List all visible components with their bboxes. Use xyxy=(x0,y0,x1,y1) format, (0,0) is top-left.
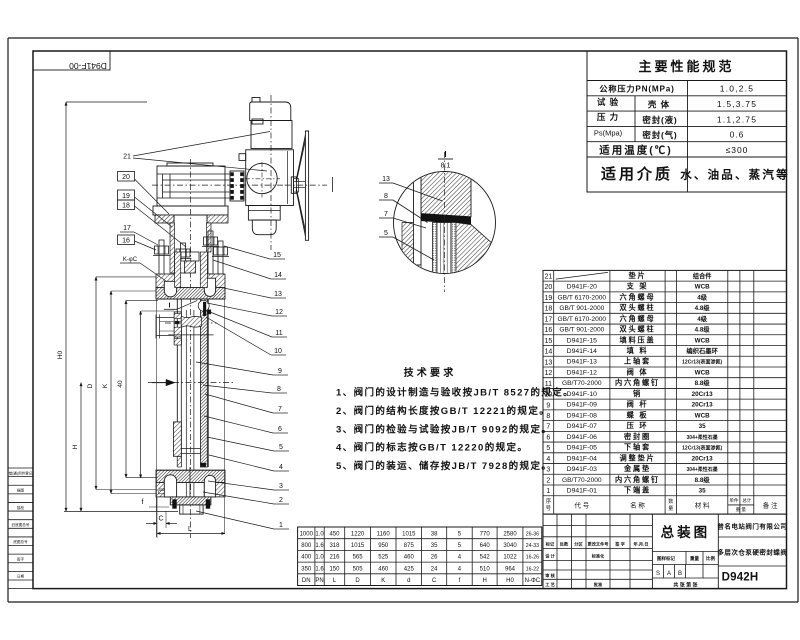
svg-text:签字: 签字 xyxy=(17,556,25,561)
svg-text:压 环: 压 环 xyxy=(627,421,649,430)
svg-text:编织石墨环: 编织石墨环 xyxy=(686,346,718,355)
svg-text:设 计: 设 计 xyxy=(545,553,555,560)
svg-text:D942H: D942H xyxy=(722,572,759,584)
svg-text:D941F-07: D941F-07 xyxy=(567,423,597,430)
svg-text:双头螺柱: 双头螺柱 xyxy=(620,325,656,334)
svg-text:640: 640 xyxy=(480,543,491,549)
svg-text:1220: 1220 xyxy=(351,531,365,537)
svg-text:1.5,3.75: 1.5,3.75 xyxy=(717,99,757,109)
svg-text:填料压盖: 填料压盖 xyxy=(620,335,656,344)
svg-text:审 核: 审 核 xyxy=(545,572,555,579)
svg-text:N-ΦC: N-ΦC xyxy=(525,578,541,584)
svg-text:阀 杆: 阀 杆 xyxy=(627,400,649,409)
svg-text:3040: 3040 xyxy=(503,543,517,549)
svg-text:510: 510 xyxy=(480,566,491,572)
svg-text:D: D xyxy=(355,578,360,584)
svg-text:K-φC: K-φC xyxy=(123,257,138,263)
svg-text:单件: 单件 xyxy=(729,497,738,504)
svg-text:24-33: 24-33 xyxy=(526,543,539,549)
svg-text:1160: 1160 xyxy=(377,531,391,537)
svg-text:150: 150 xyxy=(329,566,340,572)
svg-text:875: 875 xyxy=(404,543,415,549)
svg-text:1000: 1000 xyxy=(300,531,314,537)
svg-text:19: 19 xyxy=(544,295,552,302)
svg-text:密封圈: 密封圈 xyxy=(623,432,651,441)
svg-text:D941F-20: D941F-20 xyxy=(567,284,597,291)
svg-text:12Cr13(表面渗氮): 12Cr13(表面渗氮) xyxy=(682,359,722,366)
svg-text:400: 400 xyxy=(301,555,312,561)
svg-text:216: 216 xyxy=(329,555,340,561)
svg-text:1022: 1022 xyxy=(503,555,517,561)
svg-text:壳 体: 壳 体 xyxy=(647,100,670,110)
svg-text:总装图: 总装图 xyxy=(661,524,711,540)
svg-text:公称压力PN(MPa): 公称压力PN(MPa) xyxy=(599,84,674,94)
svg-text:多层次仓泵硬密封蝶阀: 多层次仓泵硬密封蝶阀 xyxy=(717,548,787,557)
svg-text:总计: 总计 xyxy=(742,497,751,504)
svg-text:D941F-15: D941F-15 xyxy=(567,337,597,344)
svg-text:2: 2 xyxy=(279,497,283,504)
svg-text:5: 5 xyxy=(384,230,388,237)
svg-text:16: 16 xyxy=(122,238,130,245)
svg-text:下轴套: 下轴套 xyxy=(624,443,651,452)
svg-text:标准化: 标准化 xyxy=(591,553,605,560)
svg-text:8:1: 8:1 xyxy=(441,163,451,170)
svg-text:量: 量 xyxy=(668,505,673,512)
svg-text:D941F-14: D941F-14 xyxy=(567,348,597,355)
svg-text:542: 542 xyxy=(480,555,491,561)
svg-text:16: 16 xyxy=(544,327,552,334)
svg-text:20: 20 xyxy=(122,174,130,181)
svg-text:7: 7 xyxy=(278,406,282,413)
svg-text:适用温度(℃): 适用温度(℃) xyxy=(599,144,673,157)
svg-text:密封(气): 密封(气) xyxy=(641,130,677,140)
svg-text:蝶 板: 蝶 板 xyxy=(627,410,649,419)
svg-text:8.8级: 8.8级 xyxy=(695,378,711,387)
svg-text:图样标记: 图样标记 xyxy=(657,555,675,562)
svg-text:11: 11 xyxy=(275,330,282,337)
svg-text:年.月.日: 年.月.日 xyxy=(634,541,649,548)
svg-text:3、阀门的检验与试验按JB/T 9092的规定。: 3、阀门的检验与试验按JB/T 9092的规定。 xyxy=(336,423,552,435)
svg-text:GB/T 901-2000: GB/T 901-2000 xyxy=(559,327,604,334)
svg-text:24: 24 xyxy=(431,566,438,572)
svg-text:D941F-05: D941F-05 xyxy=(567,445,597,452)
svg-text:重 量: 重 量 xyxy=(736,506,747,513)
svg-text:D941F-08: D941F-08 xyxy=(567,412,597,419)
svg-text:8: 8 xyxy=(277,386,281,393)
svg-text:1、阀门的设计制造与验收按JB/T 8527的规定。: 1、阀门的设计制造与验收按JB/T 8527的规定。 xyxy=(336,387,574,399)
svg-text:26: 26 xyxy=(431,555,438,561)
svg-text:4、阀门的标志按GB/T 12220的规定。: 4、阀门的标志按GB/T 12220的规定。 xyxy=(336,442,528,454)
svg-text:S: S xyxy=(656,571,660,577)
svg-text:16-22: 16-22 xyxy=(526,566,539,572)
svg-text:5、阀门的装运、储存按JB/T 7928的规定。: 5、阀门的装运、储存按JB/T 7928的规定。 xyxy=(336,460,552,472)
svg-text:10: 10 xyxy=(274,348,282,355)
svg-text:350: 350 xyxy=(301,566,312,572)
svg-text:DN: DN xyxy=(302,578,311,584)
svg-text:2、阀门的结构长度按GB/T 12221的规定。: 2、阀门的结构长度按GB/T 12221的规定。 xyxy=(336,405,550,417)
svg-text:19: 19 xyxy=(122,193,130,200)
svg-text:Ps(Mpa): Ps(Mpa) xyxy=(594,129,623,138)
svg-text:六角螺母: 六角螺母 xyxy=(620,314,656,323)
svg-text:垫片: 垫片 xyxy=(629,271,647,280)
svg-text:318: 318 xyxy=(329,543,340,549)
svg-text:7: 7 xyxy=(384,211,388,218)
svg-text:8: 8 xyxy=(384,193,388,200)
svg-text:14: 14 xyxy=(544,349,552,356)
svg-text:旧底图总号: 旧底图总号 xyxy=(12,522,30,527)
svg-text:35: 35 xyxy=(431,543,438,549)
svg-text:处数: 处数 xyxy=(559,541,569,548)
svg-text:460: 460 xyxy=(378,566,389,572)
svg-text:组合件: 组合件 xyxy=(693,271,713,280)
svg-text:内六角螺钉: 内六角螺钉 xyxy=(615,378,660,387)
svg-text:K: K xyxy=(102,383,109,388)
svg-text:4级: 4级 xyxy=(697,314,708,323)
svg-text:GB/T 6170-2000: GB/T 6170-2000 xyxy=(557,316,606,323)
svg-text:40: 40 xyxy=(117,380,124,388)
svg-text:1.6: 1.6 xyxy=(315,566,324,572)
svg-text:4.8级: 4.8级 xyxy=(695,303,711,312)
svg-text:525: 525 xyxy=(378,555,389,561)
svg-text:阀 体: 阀 体 xyxy=(627,367,649,376)
svg-text:水、油品、蒸汽等: 水、油品、蒸汽等 xyxy=(680,168,790,182)
svg-text:重量: 重量 xyxy=(690,555,699,562)
svg-text:D941F-06: D941F-06 xyxy=(567,434,597,441)
svg-text:共 张 第 张: 共 张 第 张 xyxy=(673,581,698,588)
svg-text:D941F-01: D941F-01 xyxy=(567,488,597,495)
svg-text:H: H xyxy=(482,578,486,584)
svg-text:20Cr13: 20Cr13 xyxy=(692,455,714,462)
svg-text:密封(液): 密封(液) xyxy=(641,115,677,125)
svg-text:35: 35 xyxy=(699,423,707,430)
svg-text:6: 6 xyxy=(546,434,550,441)
svg-text:1.0,2.5: 1.0,2.5 xyxy=(720,84,754,94)
svg-text:18: 18 xyxy=(544,306,552,313)
svg-text:H0: H0 xyxy=(506,578,514,584)
svg-text:签 字: 签 字 xyxy=(614,541,625,548)
svg-text:17: 17 xyxy=(544,316,552,323)
svg-text:GB/T70-2000: GB/T70-2000 xyxy=(562,380,602,387)
svg-text:底图总号: 底图总号 xyxy=(13,539,28,544)
svg-text:GB/T 6170-2000: GB/T 6170-2000 xyxy=(557,294,606,301)
svg-text:4级: 4级 xyxy=(697,292,708,301)
svg-text:505: 505 xyxy=(353,566,364,572)
svg-text:D941F-04: D941F-04 xyxy=(567,455,597,462)
svg-text:H0: H0 xyxy=(57,350,64,359)
svg-text:序: 序 xyxy=(546,497,552,505)
svg-text:批准: 批准 xyxy=(594,581,603,588)
svg-text:0.6: 0.6 xyxy=(730,130,745,140)
svg-text:1015: 1015 xyxy=(351,543,365,549)
svg-text:15: 15 xyxy=(273,252,281,259)
svg-text:1.1,2.75: 1.1,2.75 xyxy=(717,114,757,124)
svg-text:1.6: 1.6 xyxy=(315,543,324,549)
svg-text:调整垫片: 调整垫片 xyxy=(620,453,656,462)
svg-text:15: 15 xyxy=(544,338,552,345)
svg-text:4: 4 xyxy=(279,464,283,471)
svg-text:试 验: 试 验 xyxy=(597,97,619,107)
svg-text:数: 数 xyxy=(668,498,673,505)
svg-text:5: 5 xyxy=(279,444,283,451)
svg-text:K: K xyxy=(381,578,385,584)
svg-text:1: 1 xyxy=(279,522,283,529)
svg-text:8.8级: 8.8级 xyxy=(695,475,711,484)
svg-text:18: 18 xyxy=(122,203,130,210)
svg-text:1.0: 1.0 xyxy=(315,531,324,537)
svg-text:565: 565 xyxy=(353,555,364,561)
svg-text:4.8级: 4.8级 xyxy=(695,325,711,334)
svg-text:比例: 比例 xyxy=(706,555,715,562)
svg-text:B: B xyxy=(678,571,682,577)
svg-text:D941F-12: D941F-12 xyxy=(567,369,597,376)
svg-text:304+柔性石墨: 304+柔性石墨 xyxy=(687,466,718,473)
svg-text:304+柔性石墨: 304+柔性石墨 xyxy=(687,434,718,441)
svg-text:描图: 描图 xyxy=(17,488,25,493)
svg-text:12: 12 xyxy=(275,309,283,316)
svg-text:20Cr13: 20Cr13 xyxy=(692,391,714,398)
svg-text:13: 13 xyxy=(274,291,282,298)
svg-text:13: 13 xyxy=(382,176,390,183)
svg-text:35: 35 xyxy=(699,488,707,495)
svg-text:六角螺母: 六角螺母 xyxy=(620,292,656,301)
svg-text:21: 21 xyxy=(544,274,552,281)
svg-text:描校: 描校 xyxy=(17,505,25,510)
svg-text:D941F-03: D941F-03 xyxy=(567,466,597,473)
svg-text:6: 6 xyxy=(278,426,282,433)
svg-text:1: 1 xyxy=(546,488,550,495)
svg-text:770: 770 xyxy=(480,531,491,537)
svg-text:金属垫: 金属垫 xyxy=(623,464,651,473)
svg-text:GB/T 901-2000: GB/T 901-2000 xyxy=(559,305,604,312)
svg-text:材 料: 材 料 xyxy=(695,501,710,510)
svg-text:号: 号 xyxy=(546,505,552,512)
svg-text:内六角螺钉: 内六角螺钉 xyxy=(615,475,660,484)
svg-text:压 力: 压 力 xyxy=(597,112,619,122)
svg-text:450: 450 xyxy=(329,531,340,537)
svg-text:14: 14 xyxy=(274,272,282,279)
svg-text:销: 销 xyxy=(633,389,642,398)
svg-text:20Cr13: 20Cr13 xyxy=(692,402,714,409)
svg-text:名 称: 名 称 xyxy=(630,501,645,510)
svg-text:D941F-13: D941F-13 xyxy=(567,359,597,366)
svg-text:964: 964 xyxy=(505,566,516,572)
svg-text:GB/T70-2000: GB/T70-2000 xyxy=(562,477,602,484)
svg-text:C: C xyxy=(158,516,163,523)
svg-text:主要性能规范: 主要性能规范 xyxy=(638,59,734,74)
svg-text:1.0: 1.0 xyxy=(315,555,324,561)
svg-text:I: I xyxy=(169,303,171,310)
svg-text:16-26: 16-26 xyxy=(526,555,539,561)
svg-text:双头螺柱: 双头螺柱 xyxy=(620,303,656,312)
svg-text:1015: 1015 xyxy=(402,531,416,537)
svg-text:代 号: 代 号 xyxy=(574,501,589,510)
svg-text:上轴套: 上轴套 xyxy=(624,357,651,366)
svg-text:WCB: WCB xyxy=(695,284,710,291)
svg-text:38: 38 xyxy=(431,531,438,537)
svg-text:H: H xyxy=(72,444,79,449)
svg-text:2: 2 xyxy=(546,477,550,484)
svg-text:800: 800 xyxy=(301,543,312,549)
svg-text:f: f xyxy=(142,499,144,506)
svg-text:更改文件号: 更改文件号 xyxy=(588,541,609,548)
svg-text:支 架: 支 架 xyxy=(626,282,649,291)
svg-text:下端盖: 下端盖 xyxy=(624,486,651,495)
svg-text:C: C xyxy=(432,578,437,584)
svg-text:d: d xyxy=(407,578,410,584)
svg-text:A: A xyxy=(667,571,671,577)
svg-text:标记: 标记 xyxy=(545,541,555,548)
svg-text:WCB: WCB xyxy=(695,412,710,419)
svg-text:D: D xyxy=(87,383,94,388)
svg-text:2580: 2580 xyxy=(503,531,517,537)
svg-text:技术要求: 技术要求 xyxy=(404,366,457,379)
svg-text:分区: 分区 xyxy=(574,541,583,548)
svg-text:工 艺: 工 艺 xyxy=(545,581,555,588)
svg-text:备 注: 备 注 xyxy=(763,501,778,510)
svg-text:L: L xyxy=(188,526,192,533)
svg-text:9: 9 xyxy=(278,368,282,375)
svg-text:21: 21 xyxy=(123,154,131,161)
svg-text:PN: PN xyxy=(315,578,323,584)
svg-text:17: 17 xyxy=(123,225,131,232)
svg-text:26-36: 26-36 xyxy=(526,531,539,537)
svg-text:D941F-00: D941F-00 xyxy=(69,61,107,71)
svg-text:适用介质: 适用介质 xyxy=(601,165,673,183)
svg-text:日期: 日期 xyxy=(17,574,25,579)
svg-text:填 料: 填 料 xyxy=(627,346,649,355)
svg-text:12: 12 xyxy=(544,370,552,377)
svg-text:普名电站阀门有限公司: 普名电站阀门有限公司 xyxy=(717,522,787,531)
svg-text:D941F-09: D941F-09 xyxy=(567,402,597,409)
svg-text:950: 950 xyxy=(378,543,389,549)
svg-text:425: 425 xyxy=(404,566,415,572)
svg-text:借(通)用件登记: 借(通)用件登记 xyxy=(9,470,33,475)
svg-text:WCB: WCB xyxy=(695,337,710,344)
svg-text:3: 3 xyxy=(279,483,283,490)
svg-text:20: 20 xyxy=(544,284,552,291)
svg-text:≤300: ≤300 xyxy=(726,145,749,155)
svg-text:460: 460 xyxy=(404,555,415,561)
svg-text:5: 5 xyxy=(546,445,550,452)
svg-text:WCB: WCB xyxy=(695,369,710,376)
svg-text:12Cr13(表面渗氮): 12Cr13(表面渗氮) xyxy=(682,445,722,452)
svg-text:13: 13 xyxy=(544,359,552,366)
